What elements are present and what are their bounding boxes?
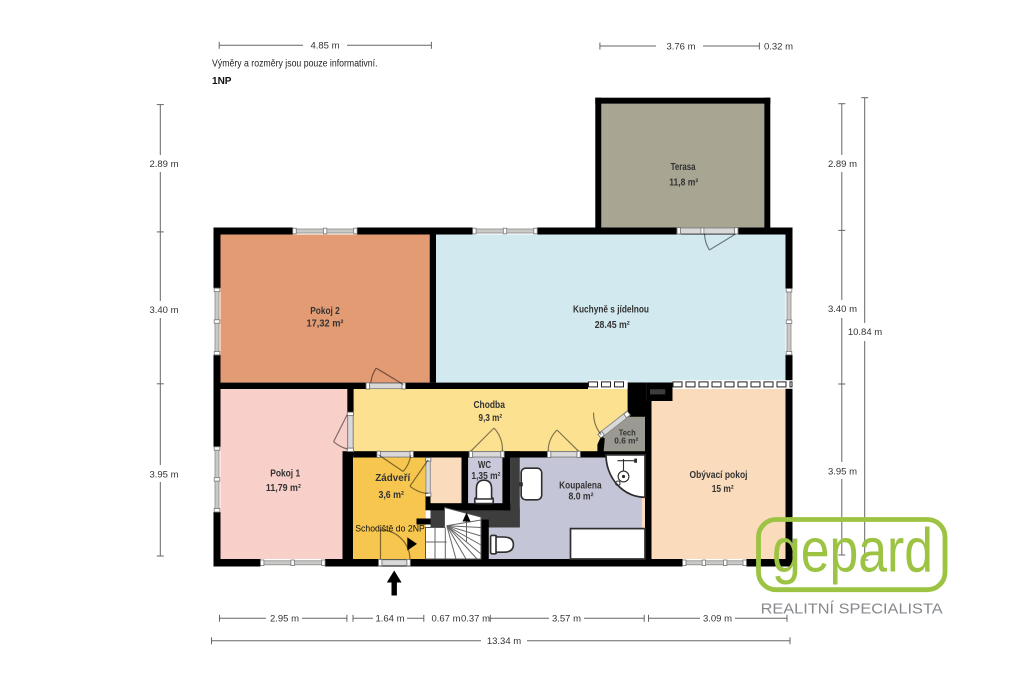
svg-text:13.34 m: 13.34 m xyxy=(487,636,521,647)
svg-text:3.09 m: 3.09 m xyxy=(703,614,732,625)
svg-text:11,8 m²: 11,8 m² xyxy=(669,178,699,189)
svg-text:2.89 m: 2.89 m xyxy=(828,159,857,170)
svg-text:0.32 m: 0.32 m xyxy=(764,41,793,52)
svg-text:9,3 m²: 9,3 m² xyxy=(479,413,503,424)
svg-text:REALITNÍ SPECIALISTA: REALITNÍ SPECIALISTA xyxy=(761,601,943,618)
svg-text:8.0 m²: 8.0 m² xyxy=(569,492,595,503)
svg-text:Kuchyně s jídelnou: Kuchyně s jídelnou xyxy=(573,305,649,316)
svg-text:3.40 m: 3.40 m xyxy=(149,305,178,316)
svg-text:Výměry a rozměry jsou pouze in: Výměry a rozměry jsou pouze informativní… xyxy=(212,58,378,69)
svg-text:2.89 m: 2.89 m xyxy=(149,159,178,170)
svg-text:1NP: 1NP xyxy=(212,75,232,87)
svg-text:Terasa: Terasa xyxy=(671,162,696,173)
svg-text:0.67 m: 0.67 m xyxy=(431,614,460,625)
svg-text:10.84 m: 10.84 m xyxy=(848,327,882,338)
svg-text:Obývací pokoj: Obývací pokoj xyxy=(690,470,748,481)
svg-text:3.57 m: 3.57 m xyxy=(552,614,581,625)
svg-text:0.37 m: 0.37 m xyxy=(461,614,490,625)
svg-text:3.95 m: 3.95 m xyxy=(149,470,178,481)
svg-text:Zádveří: Zádveří xyxy=(375,473,410,484)
svg-text:2.95 m: 2.95 m xyxy=(270,614,299,625)
svg-text:1.64 m: 1.64 m xyxy=(375,614,404,625)
svg-text:11,79 m²: 11,79 m² xyxy=(266,483,302,494)
svg-text:3.40 m: 3.40 m xyxy=(828,304,857,315)
svg-text:28.45 m²: 28.45 m² xyxy=(595,320,631,331)
svg-text:Pokoj 2: Pokoj 2 xyxy=(310,306,340,317)
svg-text:0.6 m²: 0.6 m² xyxy=(614,436,638,446)
svg-text:Koupalena: Koupalena xyxy=(559,481,602,492)
svg-text:Pokoj 1: Pokoj 1 xyxy=(270,469,300,480)
svg-text:3.76 m: 3.76 m xyxy=(666,41,695,52)
svg-text:Schodiště do 2NP: Schodiště do 2NP xyxy=(355,523,425,534)
svg-text:gepard: gepard xyxy=(772,517,933,586)
svg-text:17,32 m²: 17,32 m² xyxy=(307,319,345,330)
svg-text:1,35 m²: 1,35 m² xyxy=(471,471,501,482)
svg-text:WC: WC xyxy=(478,460,491,471)
svg-text:3,6 m²: 3,6 m² xyxy=(378,490,404,501)
svg-text:Chodba: Chodba xyxy=(473,400,505,411)
svg-text:4.85 m: 4.85 m xyxy=(310,41,339,52)
svg-text:3.95 m: 3.95 m xyxy=(828,467,857,478)
svg-text:15 m²: 15 m² xyxy=(712,484,735,495)
